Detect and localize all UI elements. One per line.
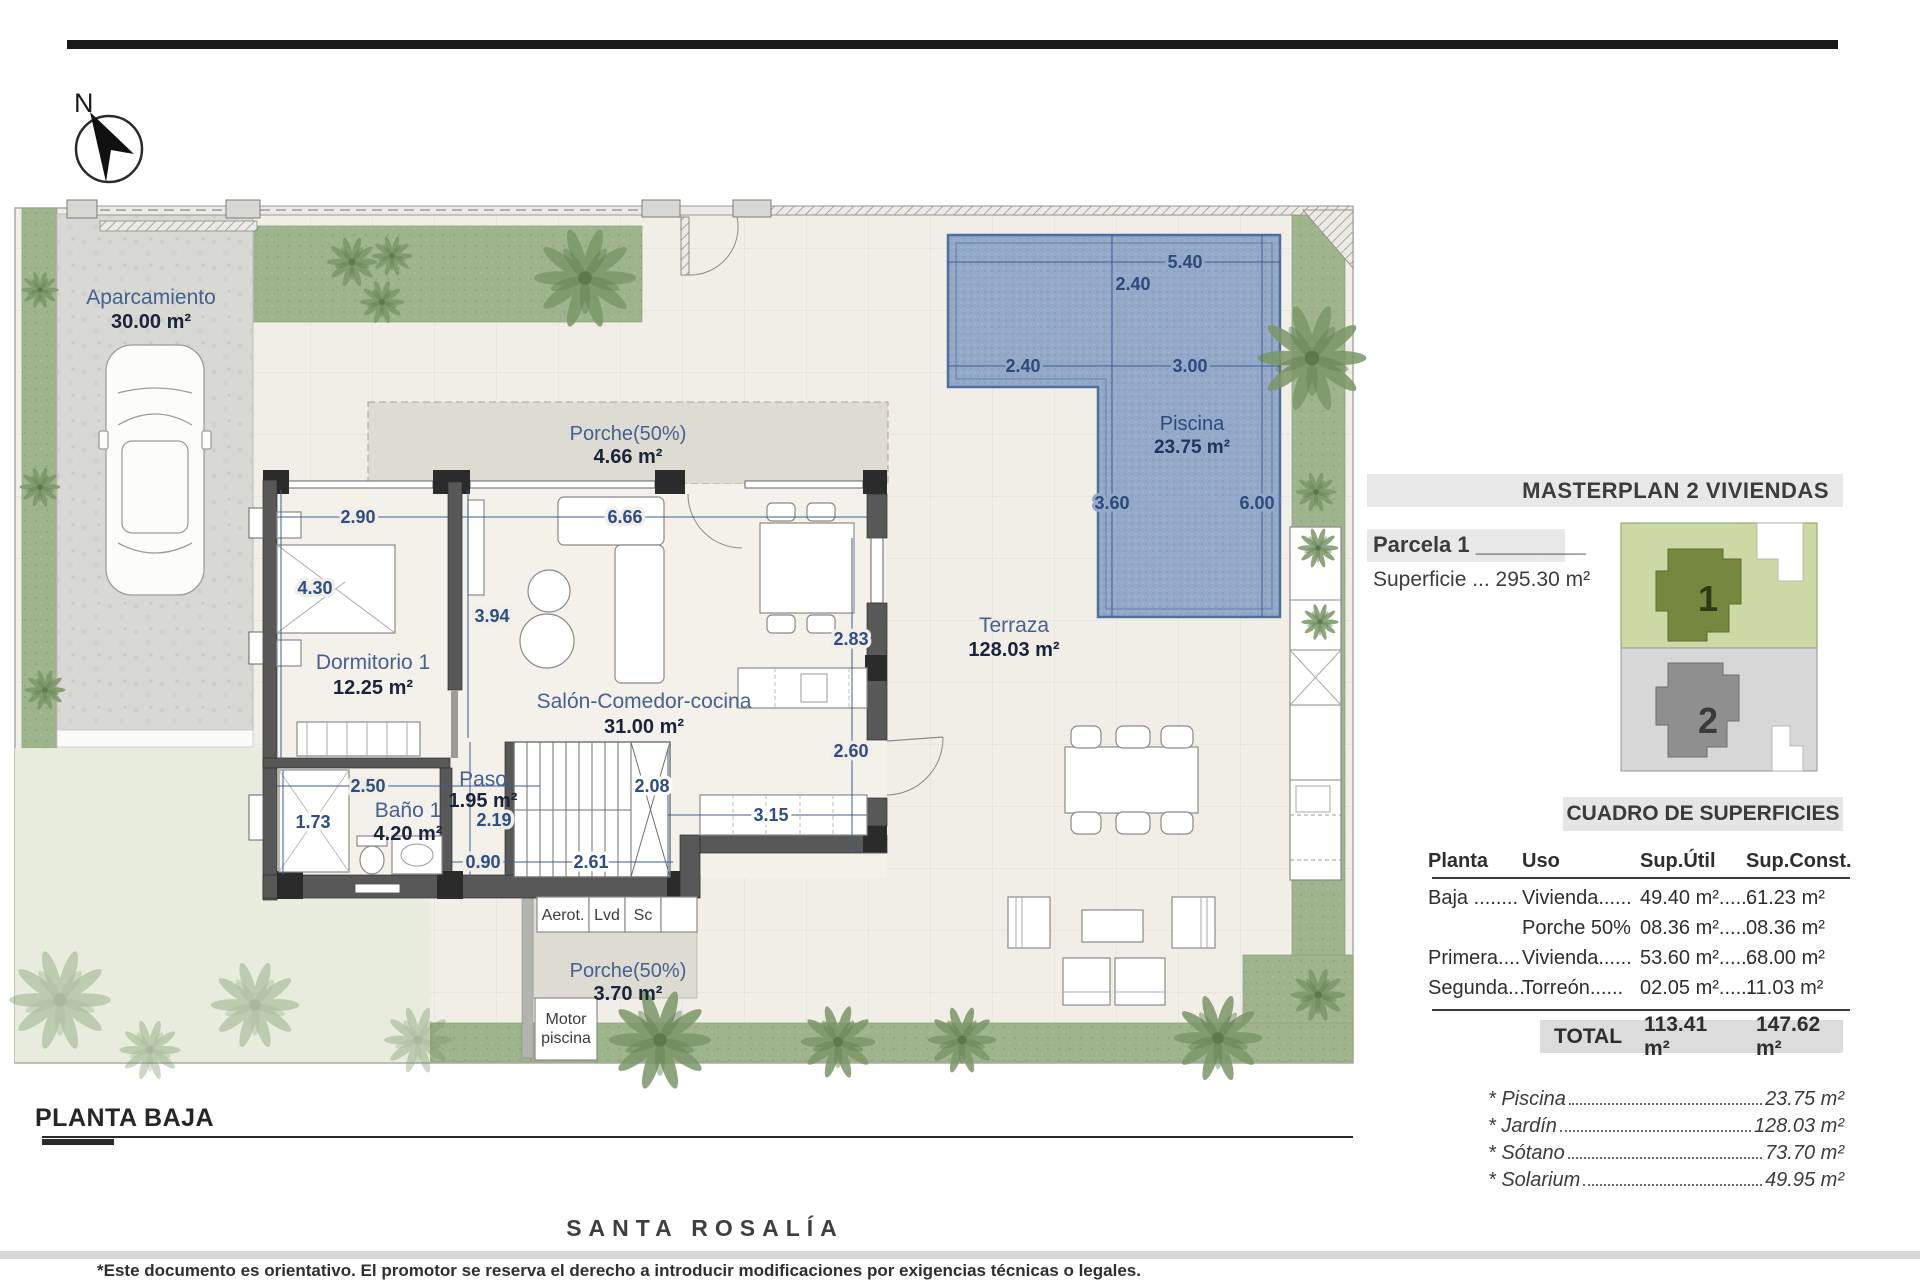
bano-area: 4.20 m²: [374, 823, 443, 845]
plan-title-rule-thick: [42, 1139, 114, 1145]
extra-value: 23.75 m²: [1765, 1088, 1844, 1111]
col-sup-util: Sup.Útil: [1640, 847, 1746, 875]
brand-name: SANTA ROSALÍA: [490, 1215, 920, 1242]
dim-bano-w: 2.50: [350, 776, 385, 796]
aerot-label: Aerot.: [542, 907, 585, 924]
surface-table-head: Planta Uso Sup.Útil Sup.Const.: [1428, 847, 1850, 875]
cell: Baja ........: [1428, 883, 1522, 913]
dim-salon-h: 3.94: [474, 606, 509, 626]
cell: 02.05 m²......: [1640, 973, 1746, 1003]
salon-name: Salón-Comedor-cocina: [537, 690, 752, 713]
cell: 61.23 m²: [1746, 883, 1850, 913]
table-row: Baja ........ Vivienda...... 49.40 m²...…: [1428, 883, 1850, 913]
table-row: Segunda... Torreón...... 02.05 m²...... …: [1428, 973, 1850, 1003]
cell: Porche 50%: [1522, 913, 1640, 943]
porche-norte-name: Porche(50%): [570, 423, 687, 445]
dot-leader: [1568, 1157, 1762, 1159]
dormitorio-name: Dormitorio 1: [316, 651, 430, 674]
porche-sur-name: Porche(50%): [570, 960, 687, 982]
masterplan-header: MASTERPLAN 2 VIVIENDAS: [1367, 474, 1843, 507]
cell: Vivienda......: [1522, 883, 1640, 913]
paso-name: Paso: [459, 768, 507, 791]
total-util: 113.41 m²: [1622, 1013, 1730, 1061]
aparcamiento-area: 30.00 m²: [111, 311, 191, 333]
parcela-label: Parcela 1 _________: [1367, 529, 1565, 560]
extra-value: 73.70 m²: [1765, 1142, 1844, 1165]
pool-dim-left-h: 2.40: [1115, 274, 1150, 294]
dot-leader: [1583, 1184, 1762, 1186]
table-row: Porche 50% 08.36 m²...... 08.36 m²: [1428, 913, 1850, 943]
cell: 08.36 m²: [1746, 913, 1850, 943]
masterplan-diagram: 1 2: [1620, 521, 1818, 773]
pool-motor-box: [535, 998, 597, 1060]
extra-label: * Piscina: [1488, 1088, 1566, 1111]
outdoor-kitchen-units: [1290, 527, 1341, 880]
dim-stairs-h: 2.08: [634, 776, 669, 796]
dim-counter: 3.15: [753, 805, 788, 825]
cell: 11.03 m²: [1746, 973, 1850, 1003]
extra-sotano: * Sótano 73.70 m²: [1488, 1142, 1844, 1169]
porche-norte-area: 4.66 m²: [594, 446, 663, 468]
lvd-label: Lvd: [594, 907, 620, 924]
footer-rule: [0, 1251, 1920, 1259]
villa-2-number: 2: [1698, 700, 1718, 741]
cell: Segunda...: [1428, 973, 1522, 1003]
dim-kitchen-top: 2.83: [833, 629, 868, 649]
cell: 08.36 m²......: [1640, 913, 1746, 943]
dot-leader: [1569, 1103, 1762, 1105]
total-row: TOTAL 113.41 m² 147.62 m²: [1540, 1020, 1843, 1053]
cell: Torreón......: [1522, 973, 1640, 1003]
dormitorio-area: 12.25 m²: [333, 677, 413, 699]
villa-1-number: 1: [1698, 578, 1718, 619]
pool-dim-left-w: 2.40: [1005, 356, 1040, 376]
dot-leader: [1560, 1130, 1751, 1132]
dim-dorm-h: 4.30: [297, 578, 332, 598]
sc-label: Sc: [634, 907, 653, 924]
north-arrow: N: [74, 88, 142, 182]
pool-dim-full-h: 6.00: [1239, 493, 1274, 513]
motor-label-1: Motor: [546, 1011, 588, 1028]
pool-dim-right-w: 3.00: [1172, 356, 1207, 376]
dim-kitchen-bottom: 2.60: [833, 741, 868, 761]
extra-piscina: * Piscina 23.75 m²: [1488, 1088, 1844, 1115]
north-label: N: [74, 88, 94, 118]
dim-shower: 1.73: [295, 812, 330, 832]
pool-dim-lower-h: 3.60: [1094, 493, 1129, 513]
plan-title-rule: [42, 1136, 1353, 1138]
salon-area: 31.00 m²: [604, 716, 684, 738]
top-rule: [67, 40, 1838, 49]
table-rule-top: [1432, 877, 1850, 879]
col-sup-const: Sup.Const.: [1746, 847, 1850, 875]
terraza-name: Terraza: [979, 614, 1049, 637]
indoor-dining: [760, 503, 854, 633]
outdoor-dining: [1065, 726, 1198, 834]
extras-list: * Piscina 23.75 m² * Jardín 128.03 m² * …: [1488, 1088, 1844, 1196]
pool-dim-top: 5.40: [1167, 252, 1202, 272]
extra-value: 49.95 m²: [1765, 1169, 1844, 1192]
col-uso: Uso: [1522, 847, 1640, 875]
motor-label-2: piscina: [541, 1030, 591, 1047]
pedestrian-gate-leaf: [681, 217, 689, 275]
total-const: 147.62 m²: [1730, 1013, 1843, 1061]
extra-label: * Solarium: [1488, 1169, 1580, 1192]
masterplan-title: MASTERPLAN 2 VIVIENDAS: [1367, 474, 1843, 507]
parcela-header: Parcela 1 _________: [1367, 529, 1565, 562]
page: Aerot. Lvd Sc Motor piscina: [0, 0, 1920, 1280]
total-label: TOTAL: [1540, 1025, 1622, 1049]
cell: [1428, 913, 1522, 943]
cell: Primera....: [1428, 943, 1522, 973]
cell: 53.60 m²......: [1640, 943, 1746, 973]
terraza-area: 128.03 m²: [968, 639, 1060, 661]
dim-paso-w: 0.90: [465, 852, 500, 872]
bano-name: Baño 1: [375, 799, 442, 822]
col-planta: Planta: [1428, 847, 1522, 875]
surface-table-header: CUADRO DE SUPERFICIES: [1563, 797, 1843, 831]
porche-sur-area: 3.70 m²: [594, 983, 663, 1005]
disclaimer: *Este documento es orientativo. El promo…: [97, 1261, 1597, 1281]
table-rule-bottom: [1432, 1009, 1850, 1011]
extra-value: 128.03 m²: [1754, 1115, 1844, 1138]
cell: 49.40 m²......: [1640, 883, 1746, 913]
extra-label: * Jardín: [1488, 1115, 1557, 1138]
car: [99, 345, 211, 595]
plan-title: PLANTA BAJA: [35, 1104, 214, 1133]
surface-table: Planta Uso Sup.Útil Sup.Const. Baja ....…: [1428, 847, 1850, 1011]
cell: Vivienda......: [1522, 943, 1640, 973]
superficie-label: Superficie ... 295.30 m²: [1373, 568, 1590, 592]
surface-table-title: CUADRO DE SUPERFICIES: [1563, 797, 1843, 831]
piscina-name: Piscina: [1160, 413, 1225, 435]
dim-dorm-w: 2.90: [340, 507, 375, 527]
paso-area: 1.95 m²: [449, 790, 518, 812]
piscina-area: 23.75 m²: [1154, 437, 1230, 458]
extra-label: * Sótano: [1488, 1142, 1565, 1165]
dim-paso-h: 2.19: [476, 810, 511, 830]
aparcamiento-name: Aparcamiento: [86, 286, 216, 309]
extra-jardin: * Jardín 128.03 m²: [1488, 1115, 1844, 1142]
extra-solarium: * Solarium 49.95 m²: [1488, 1169, 1844, 1196]
table-row: Primera.... Vivienda...... 53.60 m².....…: [1428, 943, 1850, 973]
dim-salon-w: 6.66: [607, 507, 642, 527]
wardrobe: [297, 722, 420, 756]
cell: 68.00 m²: [1746, 943, 1850, 973]
dim-stairs-w: 2.61: [573, 852, 608, 872]
